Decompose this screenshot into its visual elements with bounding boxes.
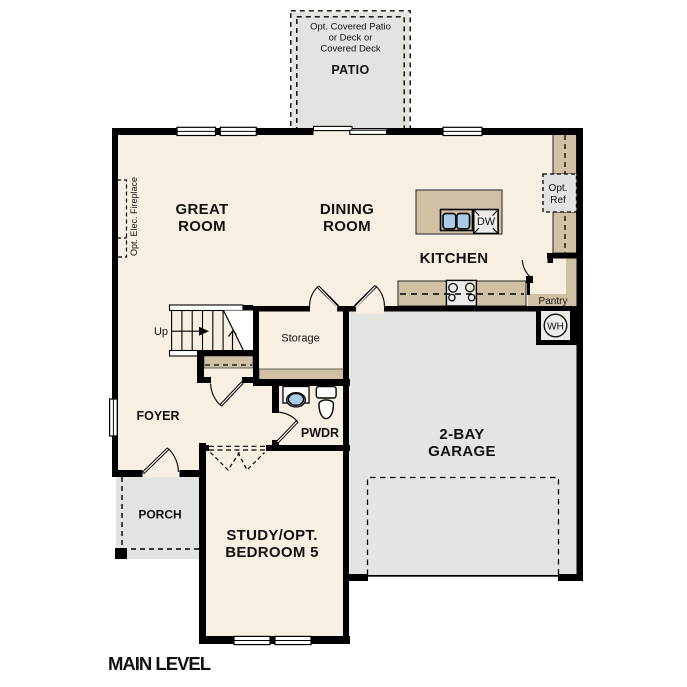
svg-text:STUDY/OPT.: STUDY/OPT. xyxy=(226,527,317,544)
svg-text:DINING: DINING xyxy=(320,201,374,218)
svg-text:MAIN LEVEL: MAIN LEVEL xyxy=(108,653,211,674)
svg-text:or Deck or: or Deck or xyxy=(329,33,373,44)
svg-text:Storage: Storage xyxy=(281,333,320,345)
svg-text:FOYER: FOYER xyxy=(136,409,179,423)
svg-text:Opt.: Opt. xyxy=(549,183,568,194)
svg-text:Up: Up xyxy=(154,326,168,338)
svg-text:BEDROOM 5: BEDROOM 5 xyxy=(225,544,319,561)
svg-text:Pantry: Pantry xyxy=(539,296,568,307)
svg-text:2-BAY: 2-BAY xyxy=(439,426,484,443)
svg-text:PATIO: PATIO xyxy=(331,63,369,77)
svg-text:ROOM: ROOM xyxy=(323,218,371,235)
svg-text:ROOM: ROOM xyxy=(178,218,226,235)
svg-text:DW: DW xyxy=(477,216,496,228)
svg-text:Covered Deck: Covered Deck xyxy=(320,44,380,55)
svg-text:GREAT: GREAT xyxy=(176,201,229,218)
svg-text:Opt. Covered Patio: Opt. Covered Patio xyxy=(310,22,391,33)
svg-text:PORCH: PORCH xyxy=(138,508,181,522)
svg-text:Ref: Ref xyxy=(550,195,566,206)
svg-text:Opt. Elec. Fireplace: Opt. Elec. Fireplace xyxy=(129,177,139,256)
svg-text:WH: WH xyxy=(547,322,564,333)
svg-text:PWDR: PWDR xyxy=(301,426,339,440)
svg-text:GARAGE: GARAGE xyxy=(428,443,496,460)
svg-text:KITCHEN: KITCHEN xyxy=(420,250,489,267)
